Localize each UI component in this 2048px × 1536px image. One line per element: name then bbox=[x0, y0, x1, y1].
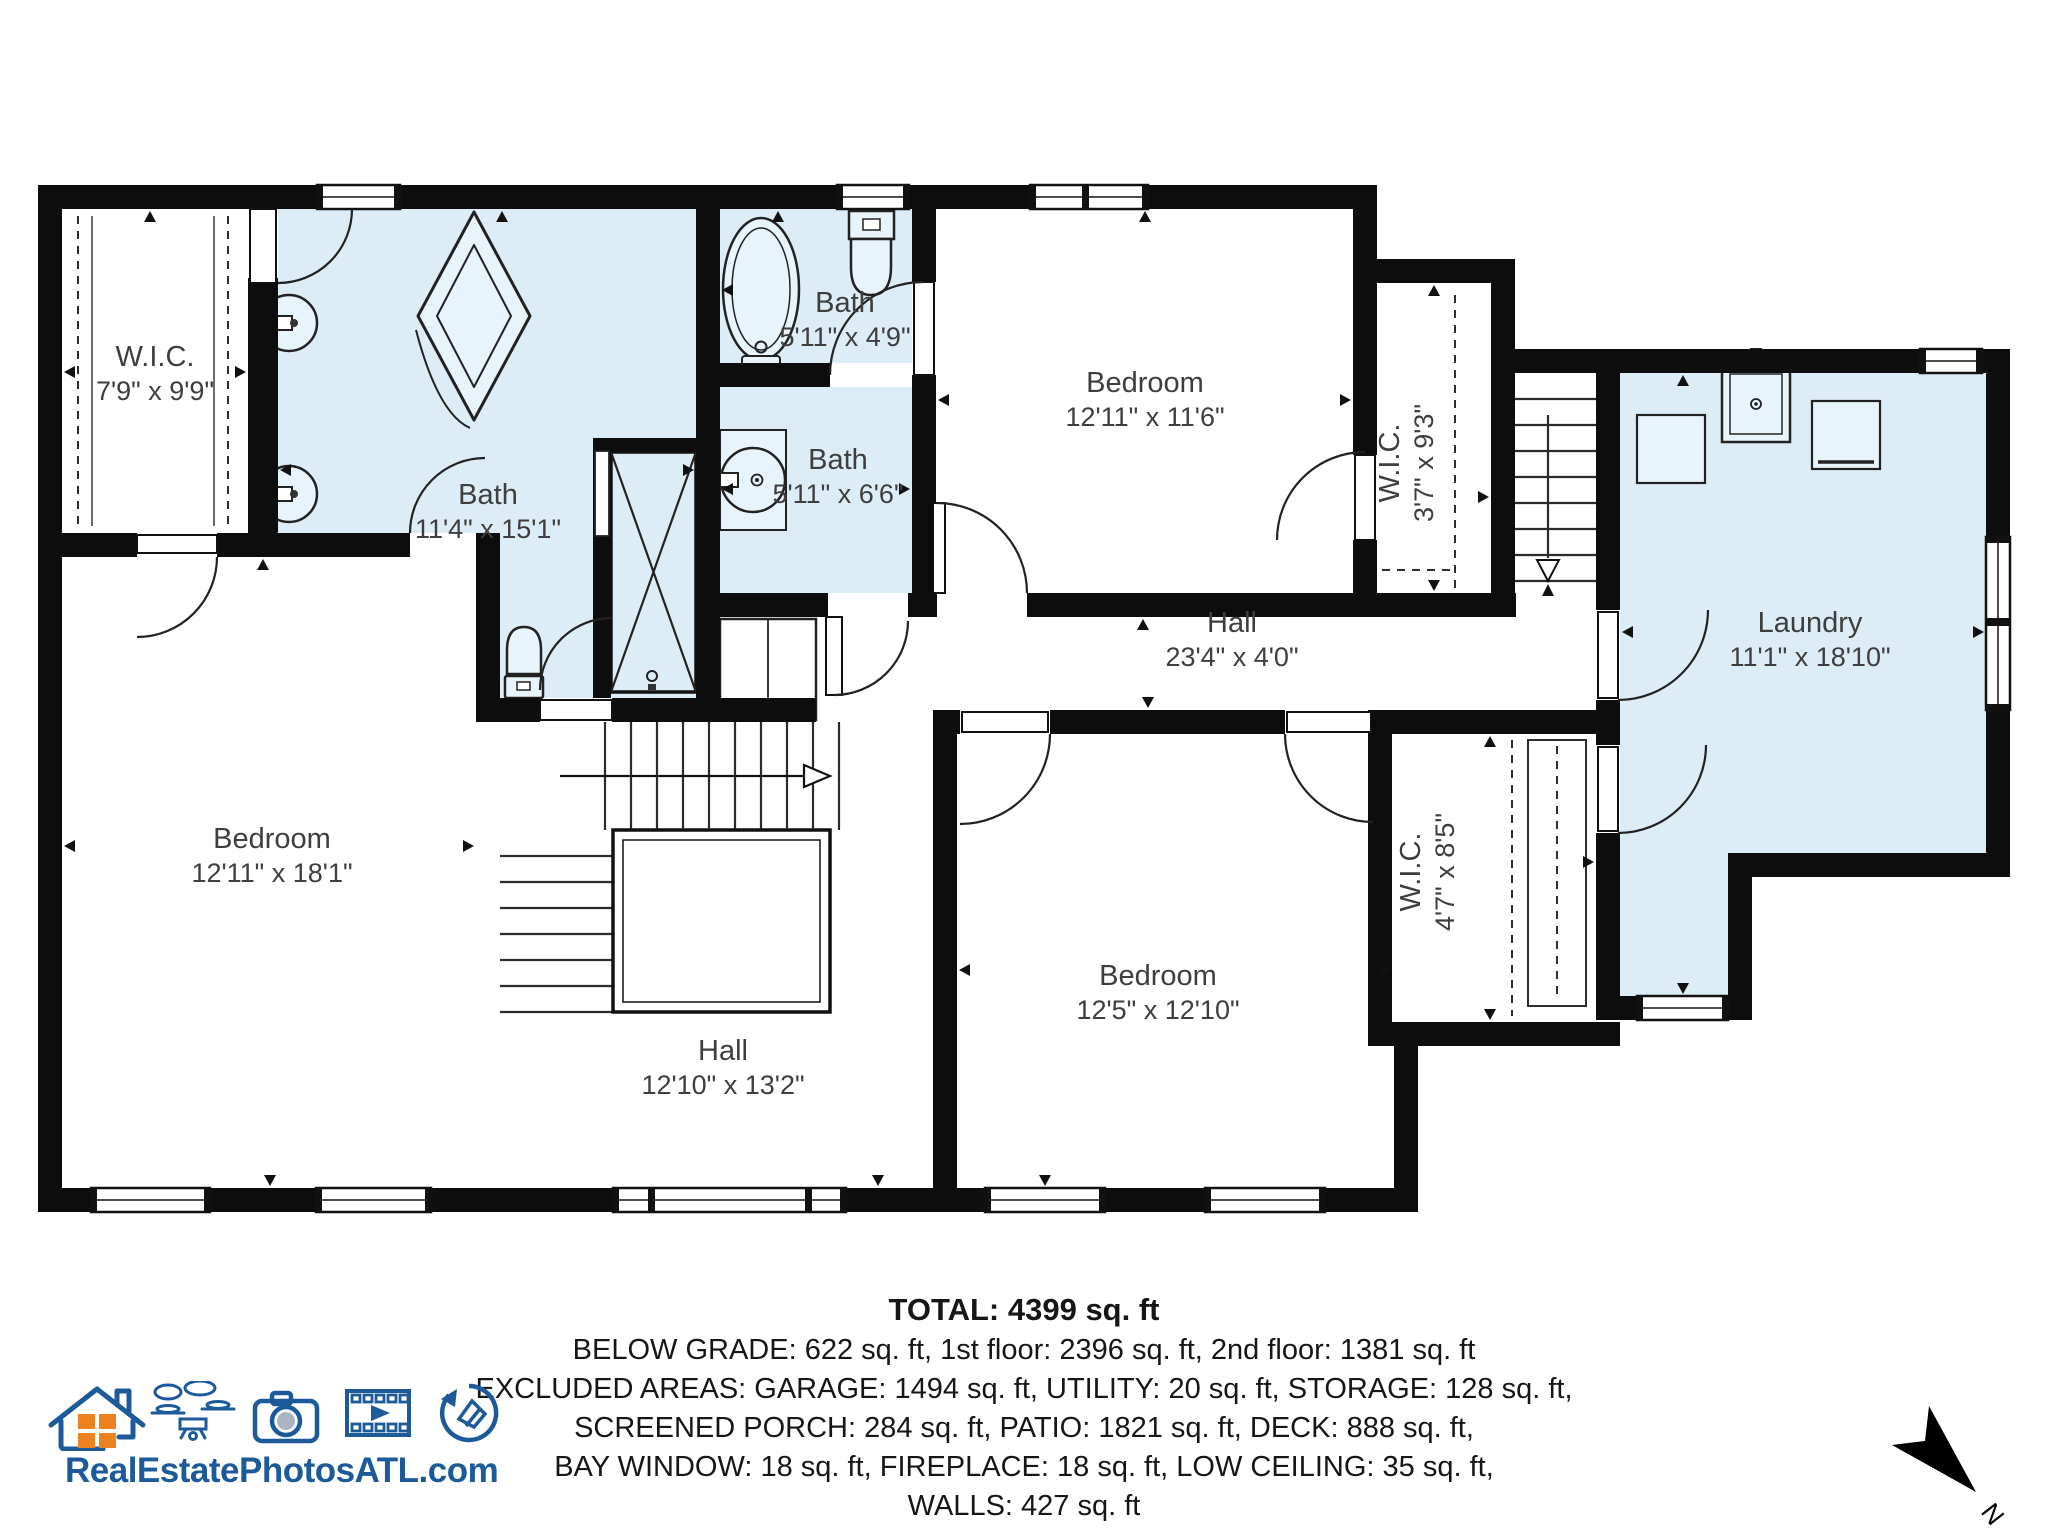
room-label-wic: W.I.C.7'9" x 9'9" bbox=[96, 340, 214, 408]
room-label-wic2: W.I.C.3'7" x 9'3" bbox=[1373, 404, 1441, 522]
room-label-hall-lower: Hall12'10" x 13'2" bbox=[641, 1034, 804, 1102]
video-icon bbox=[347, 1391, 409, 1435]
stairs-to-first-floor bbox=[1515, 399, 1596, 581]
stair-direction-arrow-up bbox=[560, 765, 830, 787]
area-line: WALLS: 427 sq. ft bbox=[0, 1490, 2048, 1523]
drone-icon bbox=[152, 1381, 234, 1440]
total-area: TOTAL: 4399 sq. ft bbox=[0, 1292, 2048, 1328]
compass: N bbox=[1872, 1392, 2048, 1532]
shower-glass bbox=[595, 451, 609, 536]
room-label-master-bath: Bath11'4" x 15'1" bbox=[415, 478, 561, 546]
room-label-bath-mid: Bath5'11" x 6'6" bbox=[772, 443, 903, 511]
company-website: RealEstatePhotosATL.com bbox=[65, 1451, 498, 1491]
house-icon bbox=[51, 1389, 143, 1449]
room-label-hall-upper: Hall23'4" x 4'0" bbox=[1165, 606, 1298, 674]
room-label-bath-top: Bath5'11" x 4'9" bbox=[779, 286, 910, 354]
company-logo: RealEstatePhotosATL.com bbox=[47, 1381, 507, 1493]
camera-icon bbox=[255, 1393, 317, 1441]
room-label-laundry: Laundry11'1" x 18'10" bbox=[1729, 606, 1890, 674]
stairwell-opening bbox=[613, 830, 830, 1012]
north-arrow-icon bbox=[1892, 1406, 1976, 1492]
dryer-icon bbox=[1812, 401, 1880, 469]
floor-plan-page: W.I.C.7'9" x 9'9" Bath11'4" x 15'1" Bath… bbox=[0, 0, 2048, 1536]
logo-icons bbox=[47, 1381, 507, 1451]
toilet-icon bbox=[849, 211, 894, 295]
tour-360-icon bbox=[441, 1386, 496, 1440]
area-line: BELOW GRADE: 622 sq. ft, 1st floor: 2396… bbox=[0, 1334, 2048, 1367]
room-label-bedroom-top: Bedroom12'11" x 11'6" bbox=[1065, 366, 1224, 434]
stair-direction-arrow-down bbox=[1537, 560, 1559, 596]
washer-icon bbox=[1637, 415, 1705, 483]
room-label-wic3: W.I.C.4'7" x 8'5" bbox=[1394, 813, 1462, 931]
north-label: N bbox=[1975, 1497, 2010, 1530]
room-label-master-bedroom: Bedroom12'11" x 18'1" bbox=[191, 822, 352, 890]
toilet-icon bbox=[505, 627, 543, 698]
room-label-bedroom-third: Bedroom12'5" x 12'10" bbox=[1076, 959, 1239, 1027]
